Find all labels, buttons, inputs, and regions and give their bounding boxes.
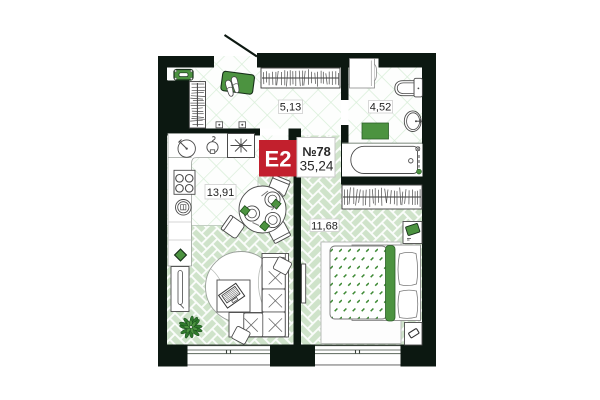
svg-text:11,68: 11,68 — [311, 220, 338, 232]
svg-text:4,52: 4,52 — [370, 102, 391, 114]
svg-text:E2: E2 — [265, 147, 292, 172]
svg-text:№78: №78 — [302, 144, 331, 159]
svg-text:13,91: 13,91 — [207, 187, 235, 199]
svg-text:35,24: 35,24 — [300, 159, 334, 174]
svg-text:5,13: 5,13 — [280, 102, 301, 114]
